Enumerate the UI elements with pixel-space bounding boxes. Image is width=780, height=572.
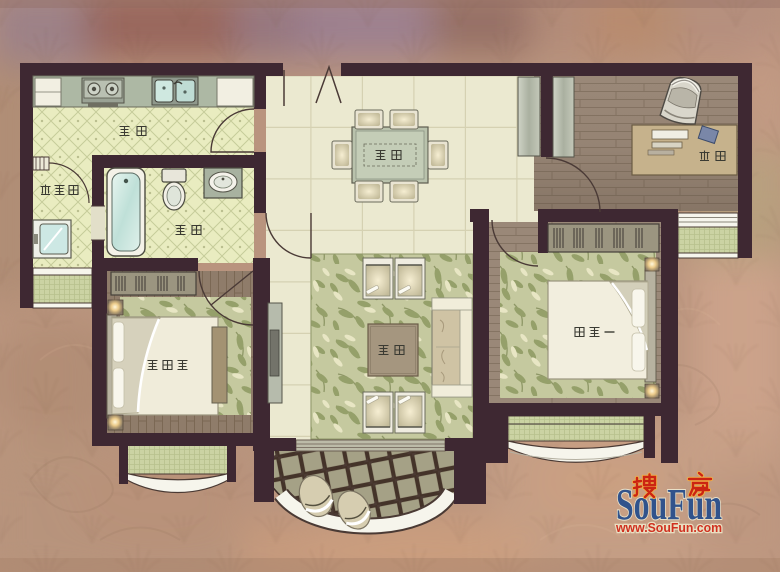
- svg-text:www.SouFun.com: www.SouFun.com: [615, 520, 722, 535]
